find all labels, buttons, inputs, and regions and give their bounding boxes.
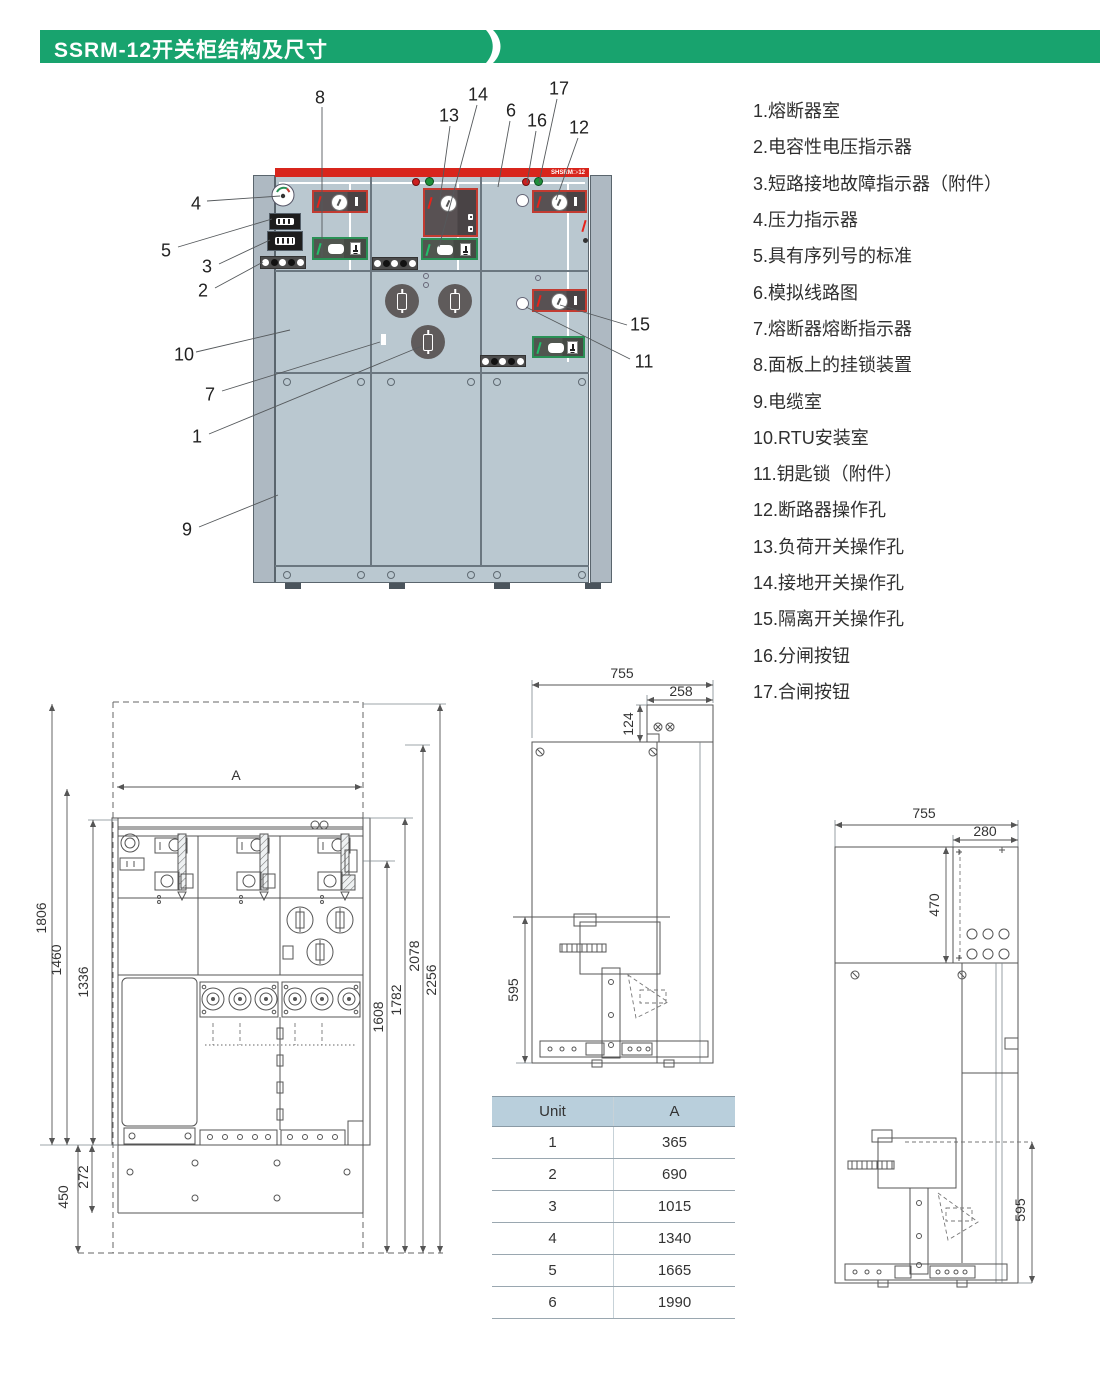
dim-label: 1460 xyxy=(48,944,64,975)
table-row: 3 1015 xyxy=(492,1191,735,1223)
cell-unit: 6 xyxy=(492,1287,614,1318)
dim-label: 2078 xyxy=(406,940,422,971)
table-row: 5 1665 xyxy=(492,1255,735,1287)
table-row: 6 1990 xyxy=(492,1287,735,1319)
dim-label: 595 xyxy=(505,978,521,1002)
legend-item: 8.面板上的挂锁装置 xyxy=(753,346,1093,382)
callout: 17 xyxy=(549,79,569,100)
callout: 8 xyxy=(315,88,325,109)
dim-label: 470 xyxy=(926,893,942,917)
callout: 10 xyxy=(174,345,194,366)
legend-item: 11.钥匙锁（附件） xyxy=(753,455,1093,491)
legend-item: 1.熔断器室 xyxy=(753,92,1093,128)
legend-item: 12.断路器操作孔 xyxy=(753,491,1093,527)
table-row: 4 1340 xyxy=(492,1223,735,1255)
cell-a: 1015 xyxy=(614,1191,735,1222)
callout: 16 xyxy=(527,111,547,132)
legend-item: 9.电缆室 xyxy=(753,382,1093,418)
callout: 14 xyxy=(468,85,488,106)
side-view-drawing-2: 755 280 470 xyxy=(835,805,1032,1287)
catalog-page: SSRM-12开关柜结构及尺寸 SHSRM□-12 xyxy=(0,0,1100,1382)
dim-label: 1336 xyxy=(75,966,91,997)
cell-a: 1340 xyxy=(614,1223,735,1254)
table-row: 2 690 xyxy=(492,1159,735,1191)
side-view-drawing-1: 755 258 124 595 xyxy=(505,665,713,1067)
legend-item: 10.RTU安装室 xyxy=(753,419,1093,455)
legend-item: 5.具有序列号的标准 xyxy=(753,237,1093,273)
callout: 3 xyxy=(202,257,212,278)
dim-label: 595 xyxy=(1012,1198,1028,1222)
cell-unit: 3 xyxy=(492,1191,614,1222)
dim-label: 124 xyxy=(620,712,636,736)
unit-table-header: Unit A xyxy=(492,1096,735,1127)
callout: 13 xyxy=(439,106,459,127)
unit-table: Unit A 1 365 2 690 3 1015 4 1340 5 1665 … xyxy=(492,1096,735,1319)
legend-item: 3.短路接地故障指示器（附件） xyxy=(753,165,1093,201)
col-header-a: A xyxy=(614,1097,735,1126)
cell-unit: 5 xyxy=(492,1255,614,1286)
table-row: 1 365 xyxy=(492,1127,735,1159)
cell-unit: 4 xyxy=(492,1223,614,1254)
dim-label: 1806 xyxy=(33,902,49,933)
dim-label: 258 xyxy=(669,683,693,699)
dim-label: 2256 xyxy=(423,964,439,995)
cell-a: 365 xyxy=(614,1127,735,1158)
dim-label: 755 xyxy=(912,805,936,821)
cell-a: 1665 xyxy=(614,1255,735,1286)
callout: 9 xyxy=(182,520,192,541)
callout: 12 xyxy=(569,118,589,139)
callout: 15 xyxy=(630,315,650,336)
col-header-unit: Unit xyxy=(492,1097,614,1126)
cell-unit: 2 xyxy=(492,1159,614,1190)
dim-label: 1608 xyxy=(370,1001,386,1032)
cell-a: 1990 xyxy=(614,1287,735,1318)
dim-label: 1782 xyxy=(388,984,404,1015)
legend-item: 7.熔断器熔断指示器 xyxy=(753,310,1093,346)
legend: 1.熔断器室 2.电容性电压指示器 3.短路接地故障指示器（附件） 4.压力指示… xyxy=(753,92,1093,709)
callout: 1 xyxy=(192,427,202,448)
callout: 7 xyxy=(205,385,215,406)
front-dimension-drawing: A xyxy=(33,702,446,1253)
callout: 5 xyxy=(161,241,171,262)
legend-item: 4.压力指示器 xyxy=(753,201,1093,237)
dim-label: A xyxy=(231,767,241,783)
cell-a: 690 xyxy=(614,1159,735,1190)
legend-item: 15.隔离开关操作孔 xyxy=(753,600,1093,636)
callout: 11 xyxy=(635,352,654,373)
callout: 4 xyxy=(191,194,201,215)
dim-label: 450 xyxy=(55,1185,71,1209)
dim-label: 755 xyxy=(610,665,634,681)
legend-item: 13.负荷开关操作孔 xyxy=(753,528,1093,564)
legend-item: 6.模拟线路图 xyxy=(753,273,1093,309)
cell-unit: 1 xyxy=(492,1127,614,1158)
legend-item: 2.电容性电压指示器 xyxy=(753,128,1093,164)
callout: 6 xyxy=(506,101,516,122)
legend-item: 14.接地开关操作孔 xyxy=(753,564,1093,600)
dim-label: 280 xyxy=(973,823,997,839)
callout: 2 xyxy=(198,281,208,302)
dim-label: 272 xyxy=(75,1165,91,1189)
